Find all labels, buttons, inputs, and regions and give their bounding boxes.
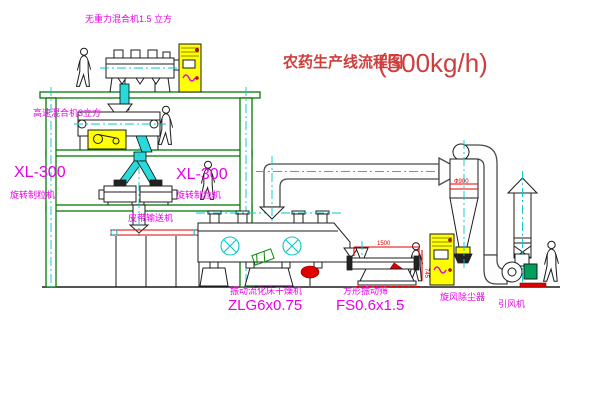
granulator-left xyxy=(99,180,136,205)
dim-length: 1500 xyxy=(377,241,391,247)
indicator-lamp xyxy=(196,77,199,80)
control-cabinet-cyclone xyxy=(430,234,454,285)
label-sieve-model: FS0.6x1.5 xyxy=(336,297,404,314)
person-figure xyxy=(77,48,91,86)
diagram-capacity: (500kg/h) xyxy=(378,48,488,78)
label-granulator-left-model: XL-300 xyxy=(14,164,66,181)
dim-height: 745 xyxy=(423,268,429,279)
control-cabinet-top xyxy=(179,44,201,92)
fan-base xyxy=(520,283,546,287)
belt-conveyor xyxy=(110,230,202,288)
exhaust-duct xyxy=(256,156,462,222)
vibrating-fluid-bed-dryer xyxy=(196,211,358,286)
cad-process-flow-diagram: 1500 745 Ф900 xyxy=(0,0,600,403)
label-dryer-model: ZLG6x0.75 xyxy=(228,297,302,314)
fan-scroll xyxy=(502,262,522,282)
cyclone-dia-note: Ф900 xyxy=(454,179,469,185)
drawing-canvas: 1500 745 Ф900 xyxy=(0,0,600,403)
vibration-motor xyxy=(301,266,319,278)
dryer-stand xyxy=(245,268,293,286)
person-figure xyxy=(544,241,559,281)
indicator-lamp xyxy=(195,48,198,51)
dryer-stand xyxy=(200,268,228,286)
person-figure xyxy=(159,106,173,144)
label-cyclone: 旋风除尘器 xyxy=(440,291,485,302)
granulator-right xyxy=(140,180,177,205)
label-granulator-right-model: XL-300 xyxy=(176,166,228,183)
label-granulator-right-name: 旋转制粒机 xyxy=(176,189,221,200)
label-fan: 引风机 xyxy=(498,298,525,309)
indicator-lamp xyxy=(449,269,452,272)
label-dryer-name: 振动流化床干燥机 xyxy=(230,285,302,296)
label-granulator-left-name: 旋转制粒机 xyxy=(10,189,55,200)
label-belt-conveyor: 皮带输送机 xyxy=(128,212,173,223)
label-sieve-name: 方形振动筛 xyxy=(343,285,388,296)
discharge-hopper xyxy=(454,254,472,263)
label-mixer-mid: 高速混合机3立方 xyxy=(33,107,101,118)
fan-motor xyxy=(524,264,537,279)
indicator-lamp xyxy=(449,239,452,242)
gravity-free-mixer xyxy=(100,50,184,110)
rotary-valve xyxy=(456,247,470,254)
label-mixer-top: 无重力混合机1.5 立方 xyxy=(85,13,172,24)
top-elbow xyxy=(453,144,469,160)
induced-draft-fan xyxy=(484,254,546,287)
